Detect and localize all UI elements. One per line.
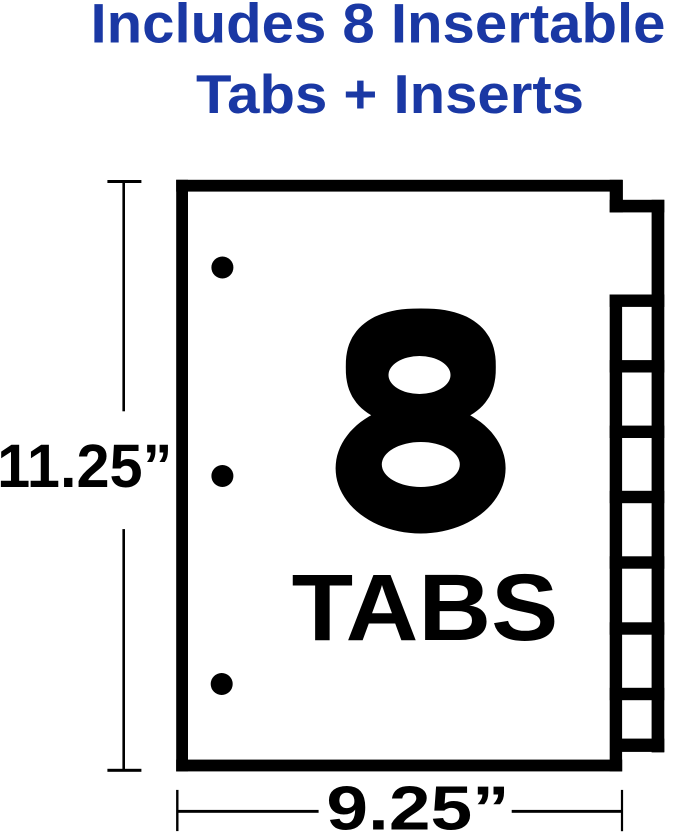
svg-text:9.25”: 9.25” <box>326 774 509 833</box>
svg-text:TABS: TABS <box>292 555 559 661</box>
svg-text:Includes 8 Insertable: Includes 8 Insertable <box>91 0 666 55</box>
svg-text:11.25”: 11.25” <box>0 432 172 500</box>
svg-text:Tabs + Inserts: Tabs + Inserts <box>196 63 584 125</box>
